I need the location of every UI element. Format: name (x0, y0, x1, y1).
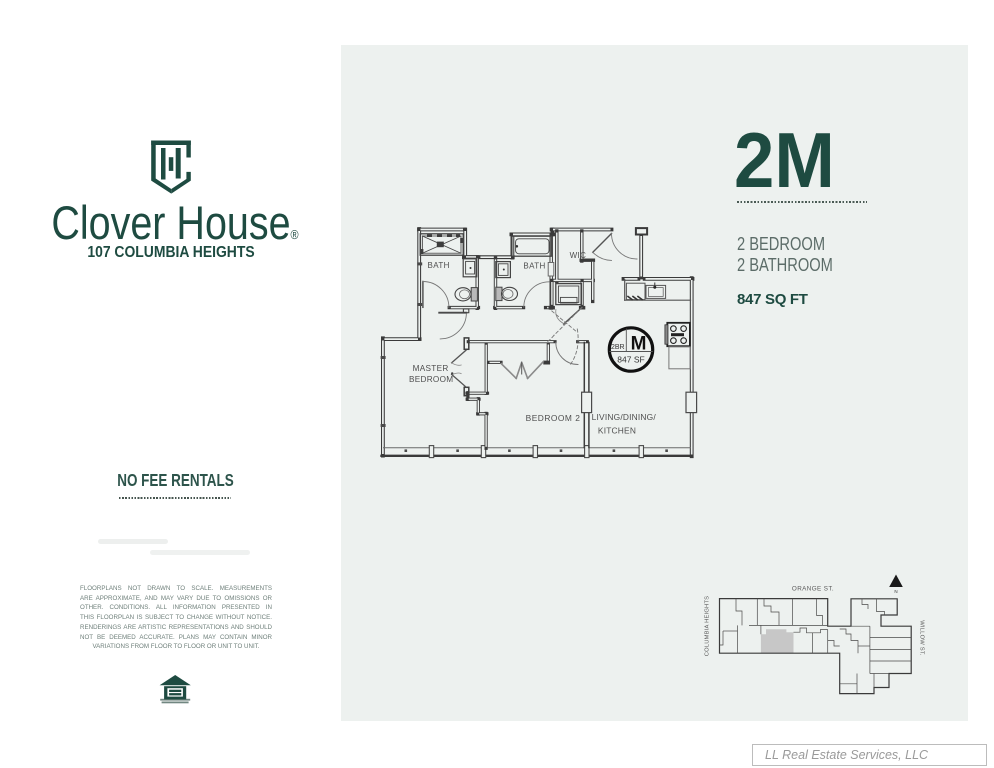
svg-text:WILLOW ST.: WILLOW ST. (919, 620, 925, 656)
svg-text:2BR: 2BR (611, 344, 625, 351)
svg-text:BEDROOM: BEDROOM (409, 375, 453, 384)
svg-text:BATH: BATH (428, 261, 450, 270)
svg-text:LIVING/DINING/: LIVING/DINING/ (592, 412, 657, 422)
svg-text:847 SF: 847 SF (617, 355, 644, 365)
svg-text:MASTER: MASTER (413, 364, 449, 373)
svg-text:BEDROOM 2: BEDROOM 2 (526, 413, 581, 423)
svg-text:KITCHEN: KITCHEN (598, 426, 636, 436)
svg-text:WIC: WIC (570, 251, 587, 260)
svg-text:N: N (894, 589, 897, 594)
svg-text:COLUMBIA HEIGHTS: COLUMBIA HEIGHTS (705, 596, 711, 657)
svg-text:BATH: BATH (523, 261, 545, 270)
svg-text:ORANGE ST.: ORANGE ST. (792, 586, 834, 593)
svg-text:M: M (631, 334, 647, 355)
